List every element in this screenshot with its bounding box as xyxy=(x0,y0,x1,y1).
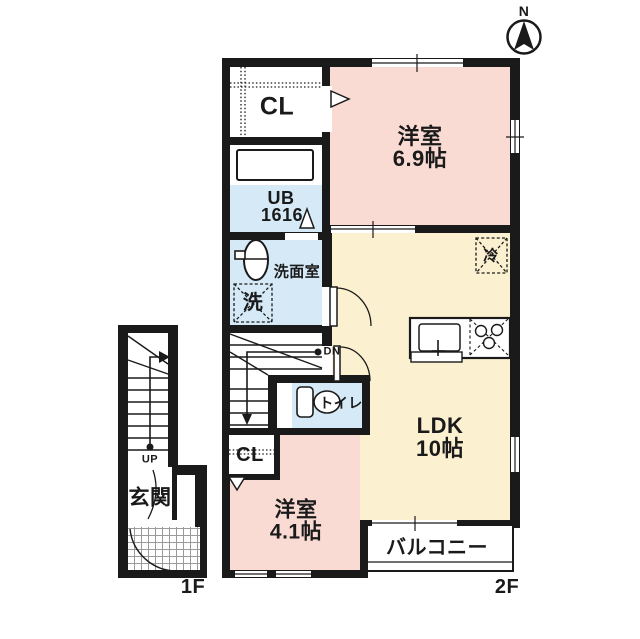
window-right-room69 xyxy=(511,120,519,153)
stairs-2f-upper xyxy=(230,333,322,377)
closet-top-label: CL xyxy=(260,95,294,120)
compass-icon xyxy=(508,21,541,54)
floor1-label: 1F xyxy=(181,577,205,597)
window-bottom-room41-b xyxy=(276,571,311,577)
room41-label-1: 洋室 xyxy=(275,500,318,521)
toilet-label: トイレ xyxy=(319,396,363,410)
floorplan-canvas: N CL UB 1616 洗面室 洗 洋室 6.9帖 冷 DN トイレ CL 洋… xyxy=(0,0,640,639)
room69-label-1: 洋室 xyxy=(397,126,442,148)
washer-label: 洗 xyxy=(243,293,264,313)
room41-label-2: 4.1帖 xyxy=(270,522,322,543)
stairs-down-label: DN xyxy=(324,347,341,358)
balcony-label: バルコニー xyxy=(386,538,488,558)
sliding-door-room69-ldk xyxy=(331,226,415,233)
stairs-1f xyxy=(128,333,168,467)
window-top xyxy=(372,59,463,67)
stairs-up-label: UP xyxy=(142,455,158,466)
entrance-side-storage xyxy=(177,475,195,520)
entrance-tile-floor xyxy=(128,527,200,570)
bath-door-opening xyxy=(285,233,318,240)
entrance-step xyxy=(128,520,195,527)
bathtub xyxy=(236,149,314,181)
balcony-door-opening xyxy=(372,520,457,526)
window-right-ldk xyxy=(511,437,519,472)
washroom-label: 洗面室 xyxy=(274,265,321,280)
floor2-label: 2F xyxy=(495,577,519,597)
stairs-2f-lower xyxy=(230,377,268,428)
washroom-door-opening xyxy=(322,287,332,326)
refrigerator-label: 冷 xyxy=(483,249,499,264)
closet-top-door-opening xyxy=(322,86,332,132)
toilet-hall xyxy=(277,383,292,428)
ldk-label-1: LDK xyxy=(417,415,464,437)
window-bottom-room41-a xyxy=(235,571,267,577)
north-label: N xyxy=(519,4,530,18)
ldk-label-2: 10帖 xyxy=(416,438,464,460)
entrance-label: 玄関 xyxy=(129,488,172,509)
room69-label-2: 6.9帖 xyxy=(393,148,448,170)
closet-bottom-label: CL xyxy=(236,445,264,465)
bath-label-2: 1616 xyxy=(261,206,303,224)
